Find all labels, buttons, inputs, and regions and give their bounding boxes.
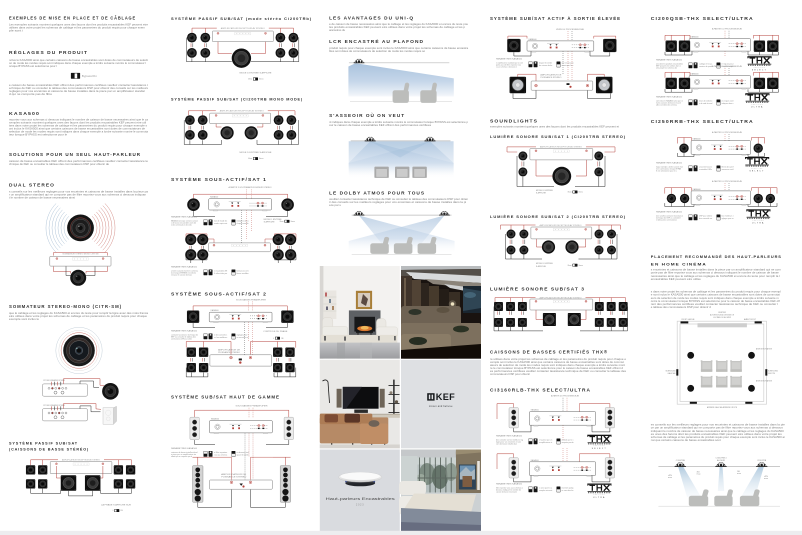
svg-text:CONTROLE DU PHASE: CONTROLE DU PHASE bbox=[263, 330, 288, 333]
svg-text:Bypass/On: Bypass/On bbox=[82, 74, 97, 78]
svg-text:aisson de basse e: aisson de basse e bbox=[699, 167, 712, 169]
svg-text:AMPLIFICATEUR DE: AMPLIFICATEUR DE bbox=[221, 473, 247, 476]
svg-text:DUAL STEREO: DUAL STEREO bbox=[9, 183, 55, 188]
svg-text:CAISSONS DE BASSES CERTIFIÉS T: CAISSONS DE BASSES CERTIFIÉS THX® bbox=[490, 350, 608, 355]
svg-text:MODE D ENTREE S AFFICHE: MODE D ENTREE S AFFICHE bbox=[240, 71, 273, 74]
svg-text:KASA500: KASA500 bbox=[691, 36, 699, 39]
svg-text:S'ASSEOIR OÙ ON VEUT: S'ASSEOIR OÙ ON VEUT bbox=[329, 113, 405, 118]
svg-text:SURROUND: SURROUND bbox=[666, 371, 677, 373]
svg-text:PARAMETRES KASA500: PARAMETRES KASA500 bbox=[496, 483, 522, 486]
svg-text:Haut-parleurs Encastrables: Haut-parleurs Encastrables bbox=[326, 497, 395, 501]
svg-text:orsque BYPASS est selectionne: orsque BYPASS est selectionne pour l bbox=[9, 64, 57, 68]
svg-text:exemples suivants montrent que: exemples suivants montrent quelques unes… bbox=[490, 125, 619, 129]
svg-text:ULTRA: ULTRA bbox=[751, 106, 764, 109]
svg-text:t le nombre de caisson de bass: t le nombre de caisson de basse necessai… bbox=[9, 195, 75, 199]
svg-text:PARAMETRES KASA500: PARAMETRES KASA500 bbox=[496, 435, 522, 438]
svg-text:S AFFICHE: S AFFICHE bbox=[536, 192, 547, 195]
svg-text:CI3160RLB-THX SELECT/ULTRA: CI3160RLB-THX SELECT/ULTRA bbox=[490, 387, 591, 392]
svg-text:VERS LE PROCESSEUR AV: VERS LE PROCESSEUR AV bbox=[556, 28, 585, 31]
svg-text:ci dessous ind: ci dessous ind bbox=[237, 452, 249, 454]
svg-text:KASA500: KASA500 bbox=[210, 196, 218, 199]
svg-text:CI160TRB: CI160TRB bbox=[676, 460, 685, 462]
svg-text:CI200QSB-THX SELECT/ULTRA: CI200QSB-THX SELECT/ULTRA bbox=[651, 16, 754, 21]
svg-text:SYSTÈME SUB/SAT HAUT DE GAMME: SYSTÈME SUB/SAT HAUT DE GAMME bbox=[171, 395, 280, 400]
svg-text:ULTRA: ULTRA bbox=[593, 496, 606, 499]
svg-text:SOMMATEUR STEREO-MONO (CITR-SM: SOMMATEUR STEREO-MONO (CITR-SM) bbox=[9, 304, 122, 309]
svg-text:e tableau des commutateurs DSP: e tableau des commutateurs DSP pour obte… bbox=[651, 305, 712, 309]
svg-text:KASA500: KASA500 bbox=[211, 418, 219, 421]
svg-text:MODE D ENTREE S AFFICHE: MODE D ENTREE S AFFICHE bbox=[240, 151, 273, 154]
svg-text:PARAMETRES KASA500: PARAMETRES KASA500 bbox=[171, 216, 197, 219]
svg-text:ece par u: ece par u bbox=[329, 203, 342, 207]
svg-text:our le caisson de basse encast: our le caisson de basse encastrables KEF… bbox=[329, 123, 432, 127]
svg-text:SOUS BASSES PREAMPLIFIER: SOUS BASSES PREAMPLIFIER bbox=[236, 298, 267, 301]
svg-text:KASA500: KASA500 bbox=[9, 111, 40, 116]
svg-text:CI250RRB-THX SELECT/ULTRA: CI250RRB-THX SELECT/ULTRA bbox=[651, 119, 754, 124]
svg-text:max: max bbox=[697, 474, 701, 476]
svg-text:Listen and believe: Listen and believe bbox=[429, 405, 453, 408]
svg-text:indiques dans c: indiques dans c bbox=[722, 103, 734, 105]
svg-text:LUMIÈRE SONORE SUB/SAT 2 (CI20: LUMIÈRE SONORE SUB/SAT 2 (CI200TRB STERE… bbox=[490, 214, 626, 219]
svg-text:180: 180 bbox=[281, 338, 284, 340]
svg-text:Mono: Mono bbox=[568, 265, 572, 267]
svg-text:PARAMETRES KASA500: PARAMETRES KASA500 bbox=[171, 447, 197, 450]
svg-text:A PARTIR D UN PREAMPLIFICATEUR: A PARTIR D UN PREAMPLIFICATEUR STEREO bbox=[229, 186, 273, 189]
svg-text:CENTER: CENTER bbox=[718, 312, 727, 314]
svg-text:EN HOME CINÉMA: EN HOME CINÉMA bbox=[651, 261, 707, 266]
svg-text:utilises dans votre projet les: utilises dans votre projet les schemas d… bbox=[9, 25, 146, 29]
svg-text:S AFFICHE: S AFFICHE bbox=[264, 220, 276, 223]
svg-text:s aux schemas ci dessous in: s aux schemas ci dessous in bbox=[496, 67, 517, 69]
svg-text:CI160TRB: CI160TRB bbox=[757, 460, 766, 462]
svg-text:PUISSANCE STEREO: PUISSANCE STEREO bbox=[221, 476, 247, 479]
svg-text:PARAMETRES KASA500: PARAMETRES KASA500 bbox=[656, 59, 682, 62]
svg-text:A PARTIR DU PROCESSEUR AV: A PARTIR DU PROCESSEUR AV bbox=[551, 395, 580, 398]
svg-text:max: max bbox=[737, 473, 741, 475]
svg-text:Mono: Mono bbox=[280, 221, 284, 223]
svg-text:KASA500: KASA500 bbox=[531, 409, 539, 412]
svg-text:Mono: Mono bbox=[248, 158, 252, 160]
svg-text:KASA500: KASA500 bbox=[693, 188, 701, 191]
svg-text:max: max bbox=[764, 478, 768, 480]
svg-text:vous aux schemas: vous aux schemas bbox=[214, 455, 227, 457]
svg-text:KASA500: KASA500 bbox=[531, 459, 539, 462]
svg-text:CERTIFIED: CERTIFIED bbox=[594, 445, 606, 447]
svg-text:S AFFICHE: S AFFICHE bbox=[536, 265, 547, 268]
svg-text:n de mode les mod: n de mode les mod bbox=[699, 103, 712, 105]
svg-text:SYSTÈME PASSIF SUB/SAT: SYSTÈME PASSIF SUB/SAT bbox=[9, 441, 78, 446]
svg-text:KASA500: KASA500 bbox=[211, 309, 219, 312]
svg-text:commutateurs DSP pour obtenir: commutateurs DSP pour obtenir bbox=[490, 372, 530, 376]
svg-text:30: 30 bbox=[737, 471, 740, 473]
svg-text:exemple sont inclus le: exemple sont inclus le bbox=[9, 317, 40, 321]
svg-text:s ainsi que le ca: s ainsi que le ca bbox=[539, 488, 552, 490]
svg-text:PARAMETRES KASA500: PARAMETRES KASA500 bbox=[656, 162, 682, 165]
svg-text:SYSTÈME PASSIF SUB/SAT (CI200T: SYSTÈME PASSIF SUB/SAT (CI200TRB MONO MO… bbox=[171, 97, 303, 102]
svg-text:CI160TRB 4: CI160TRB 4 bbox=[716, 457, 727, 459]
svg-text:SYSTÈME SOUS-ACTIF/SAT 2: SYSTÈME SOUS-ACTIF/SAT 2 bbox=[171, 292, 267, 297]
svg-text:ULTRA: ULTRA bbox=[752, 222, 765, 225]
svg-text:SYSTÈME SUB/SAT ACTIF À SORTIE: SYSTÈME SUB/SAT ACTIF À SORTIE ÉLEVÉE bbox=[490, 16, 621, 21]
svg-text:SYSTÈME PASSIF SUB/SAT (mode s: SYSTÈME PASSIF SUB/SAT (mode stéréo Ci20… bbox=[171, 16, 312, 21]
svg-text:nsi que certains caissons de b: nsi que certains caissons de basse encas… bbox=[651, 438, 721, 442]
svg-text:les produits encastrables KEF: les produits encastrables KEF peuvent et… bbox=[329, 25, 466, 29]
svg-text:(CAISSONS DE BASSE STÉRÉO): (CAISSONS DE BASSE STÉRÉO) bbox=[9, 447, 89, 452]
svg-text:SOLUTIONS POUR UN SEUL HAUT-PA: SOLUTIONS POUR UN SEUL HAUT-PARLEUR bbox=[9, 152, 141, 157]
svg-text:SYSTÈME SOUS-ACTIF/SAT 1: SYSTÈME SOUS-ACTIF/SAT 1 bbox=[171, 177, 267, 182]
svg-text:PARAMETRES KASA500: PARAMETRES KASA500 bbox=[496, 58, 522, 61]
svg-text:AMPLIFICATEUR DE: AMPLIFICATEUR DE bbox=[540, 74, 562, 77]
svg-text:Mono: Mono bbox=[568, 192, 572, 194]
svg-text:A PARTIR DU PROCESSEUR AV: A PARTIR DU PROCESSEUR AV bbox=[712, 65, 743, 68]
svg-text:SELECT: SELECT bbox=[592, 448, 607, 450]
svg-text:RÉGLAGES DU PRODUIT: RÉGLAGES DU PRODUIT bbox=[9, 50, 88, 55]
svg-text:PUISSANCE STEREO: PUISSANCE STEREO bbox=[540, 76, 562, 79]
svg-text:ainsi que le c: ainsi que le c bbox=[562, 65, 574, 67]
svg-text:SURROUND: SURROUND bbox=[768, 371, 779, 373]
svg-text:PARAMETRES KASA500: PARAMETRES KASA500 bbox=[656, 96, 682, 99]
svg-text:es unes des fac: es unes des fac bbox=[562, 490, 574, 492]
svg-text:LA PHASE S AFFICHE SUR: LA PHASE S AFFICHE SUR bbox=[101, 503, 132, 506]
svg-text:PARAMETRES KASA500: PARAMETRES KASA500 bbox=[171, 266, 197, 269]
svg-text:LES AVANTAGES DU UNI-Q: LES AVANTAGES DU UNI-Q bbox=[329, 16, 414, 21]
svg-text:PUISSANCE STEREO: PUISSANCE STEREO bbox=[218, 351, 241, 354]
svg-text:ir des conseils sur les meille: ir des conseils sur les meilleurs reglag… bbox=[329, 200, 466, 204]
svg-text:PARAMETRES KASA500: PARAMETRES KASA500 bbox=[171, 330, 197, 333]
svg-text:A PARTIR DU PROCESSEUR AV: A PARTIR DU PROCESSEUR AV bbox=[712, 180, 743, 183]
svg-text:arametres du: arametres du bbox=[329, 28, 346, 32]
svg-text:chnique de KEF ou consulter le: chnique de KEF ou consulter le tableau d… bbox=[9, 162, 110, 166]
svg-text:CERTIFIED: CERTIFIED bbox=[752, 104, 764, 106]
svg-text:45: 45 bbox=[668, 475, 672, 477]
svg-text:chaque exemple: chaque exemple bbox=[237, 223, 249, 225]
svg-text:CERTIFIED: CERTIFIED bbox=[751, 168, 763, 170]
svg-text:CERTIFIED: CERTIFIED bbox=[754, 67, 766, 69]
svg-text:fiees veuillez: fiees veuillez bbox=[237, 273, 249, 275]
svg-text:KASA500: KASA500 bbox=[691, 73, 699, 76]
svg-text:PLACEMENT RECOMMANDÉ DES HAUT-: PLACEMENT RECOMMANDÉ DES HAUT-PARLEURS bbox=[651, 254, 782, 259]
svg-text:KEF: KEF bbox=[436, 392, 455, 402]
svg-text:ple sont i: ple sont i bbox=[9, 28, 24, 32]
svg-text:KASA500: KASA500 bbox=[693, 138, 701, 141]
svg-text:bles sont dotes de commutateur: bles sont dotes de commutateurs de selec… bbox=[329, 49, 426, 53]
svg-text:AMPLIFICATEUR DE: AMPLIFICATEUR DE bbox=[218, 349, 241, 352]
svg-text:Mono: Mono bbox=[248, 79, 252, 81]
svg-text:SELECT: SELECT bbox=[749, 170, 764, 172]
svg-text:CERTIFIED: CERTIFIED bbox=[594, 494, 606, 496]
svg-text:A PARTIR DU PROCESSEUR AV: A PARTIR DU PROCESSEUR AV bbox=[712, 131, 743, 134]
svg-text:A PARTIR DU PROCESSEUR AV: A PARTIR DU PROCESSEUR AV bbox=[712, 28, 743, 31]
svg-text:d qui ne comporte pas de filtr: d qui ne comporte pas de filtre bbox=[9, 92, 53, 96]
svg-text:DROITE: DROITE bbox=[768, 373, 775, 375]
svg-text:KASA500: KASA500 bbox=[529, 38, 537, 41]
svg-text:teur lorsque BYPASS est select: teur lorsque BYPASS est selectionne pour… bbox=[9, 133, 68, 137]
svg-text:SELECT: SELECT bbox=[752, 70, 767, 72]
svg-text:SOUS BASSES PREAMPLIFIER: SOUS BASSES PREAMPLIFIER bbox=[236, 405, 269, 408]
svg-text:SOUNDLIGHTS: SOUNDLIGHTS bbox=[490, 118, 538, 123]
svg-text:max: max bbox=[668, 477, 672, 479]
svg-text:180: 180 bbox=[120, 510, 123, 512]
svg-text:30: 30 bbox=[697, 471, 700, 473]
svg-text:CITR SM SOMMATEUR STEREO: CITR SM SOMMATEUR STEREO bbox=[43, 404, 66, 407]
svg-text:CERTIFIED: CERTIFIED bbox=[753, 220, 765, 222]
svg-text:LCR ENCASTRÉ AU PLAFOND: LCR ENCASTRÉ AU PLAFOND bbox=[329, 39, 424, 44]
svg-text:0: 0 bbox=[112, 510, 113, 512]
svg-text:PARAMETRES KASA500: PARAMETRES KASA500 bbox=[656, 211, 682, 214]
svg-text:LE DOLBY ATMOS POUR TOUS: LE DOLBY ATMOS POUR TOUS bbox=[329, 190, 425, 195]
svg-text:45: 45 bbox=[764, 476, 768, 478]
svg-text:EXEMPLES DE MISE EN PLACE ET D: EXEMPLES DE MISE EN PLACE ET DE CÂBLAGE bbox=[9, 15, 136, 20]
svg-text:de caisson de ba: de caisson de ba bbox=[539, 65, 552, 67]
svg-text:LUMIÈRE SONORE SUB/SAT 1 (CI20: LUMIÈRE SONORE SUB/SAT 1 (CI200TRB STERE… bbox=[490, 134, 626, 139]
svg-text:CITR SM SOMMATEUR STEREO: CITR SM SOMMATEUR STEREO bbox=[43, 379, 66, 382]
svg-text:LUMIÈRE SONORE SUB/SAT 3: LUMIÈRE SONORE SUB/SAT 3 bbox=[490, 287, 585, 292]
svg-text:encastrables KEF peuvent etre: encastrables KEF peuvent etre utilise bbox=[651, 277, 702, 281]
svg-text:indiques dans: indiques dans bbox=[237, 221, 249, 223]
svg-text:2023: 2023 bbox=[356, 505, 364, 507]
